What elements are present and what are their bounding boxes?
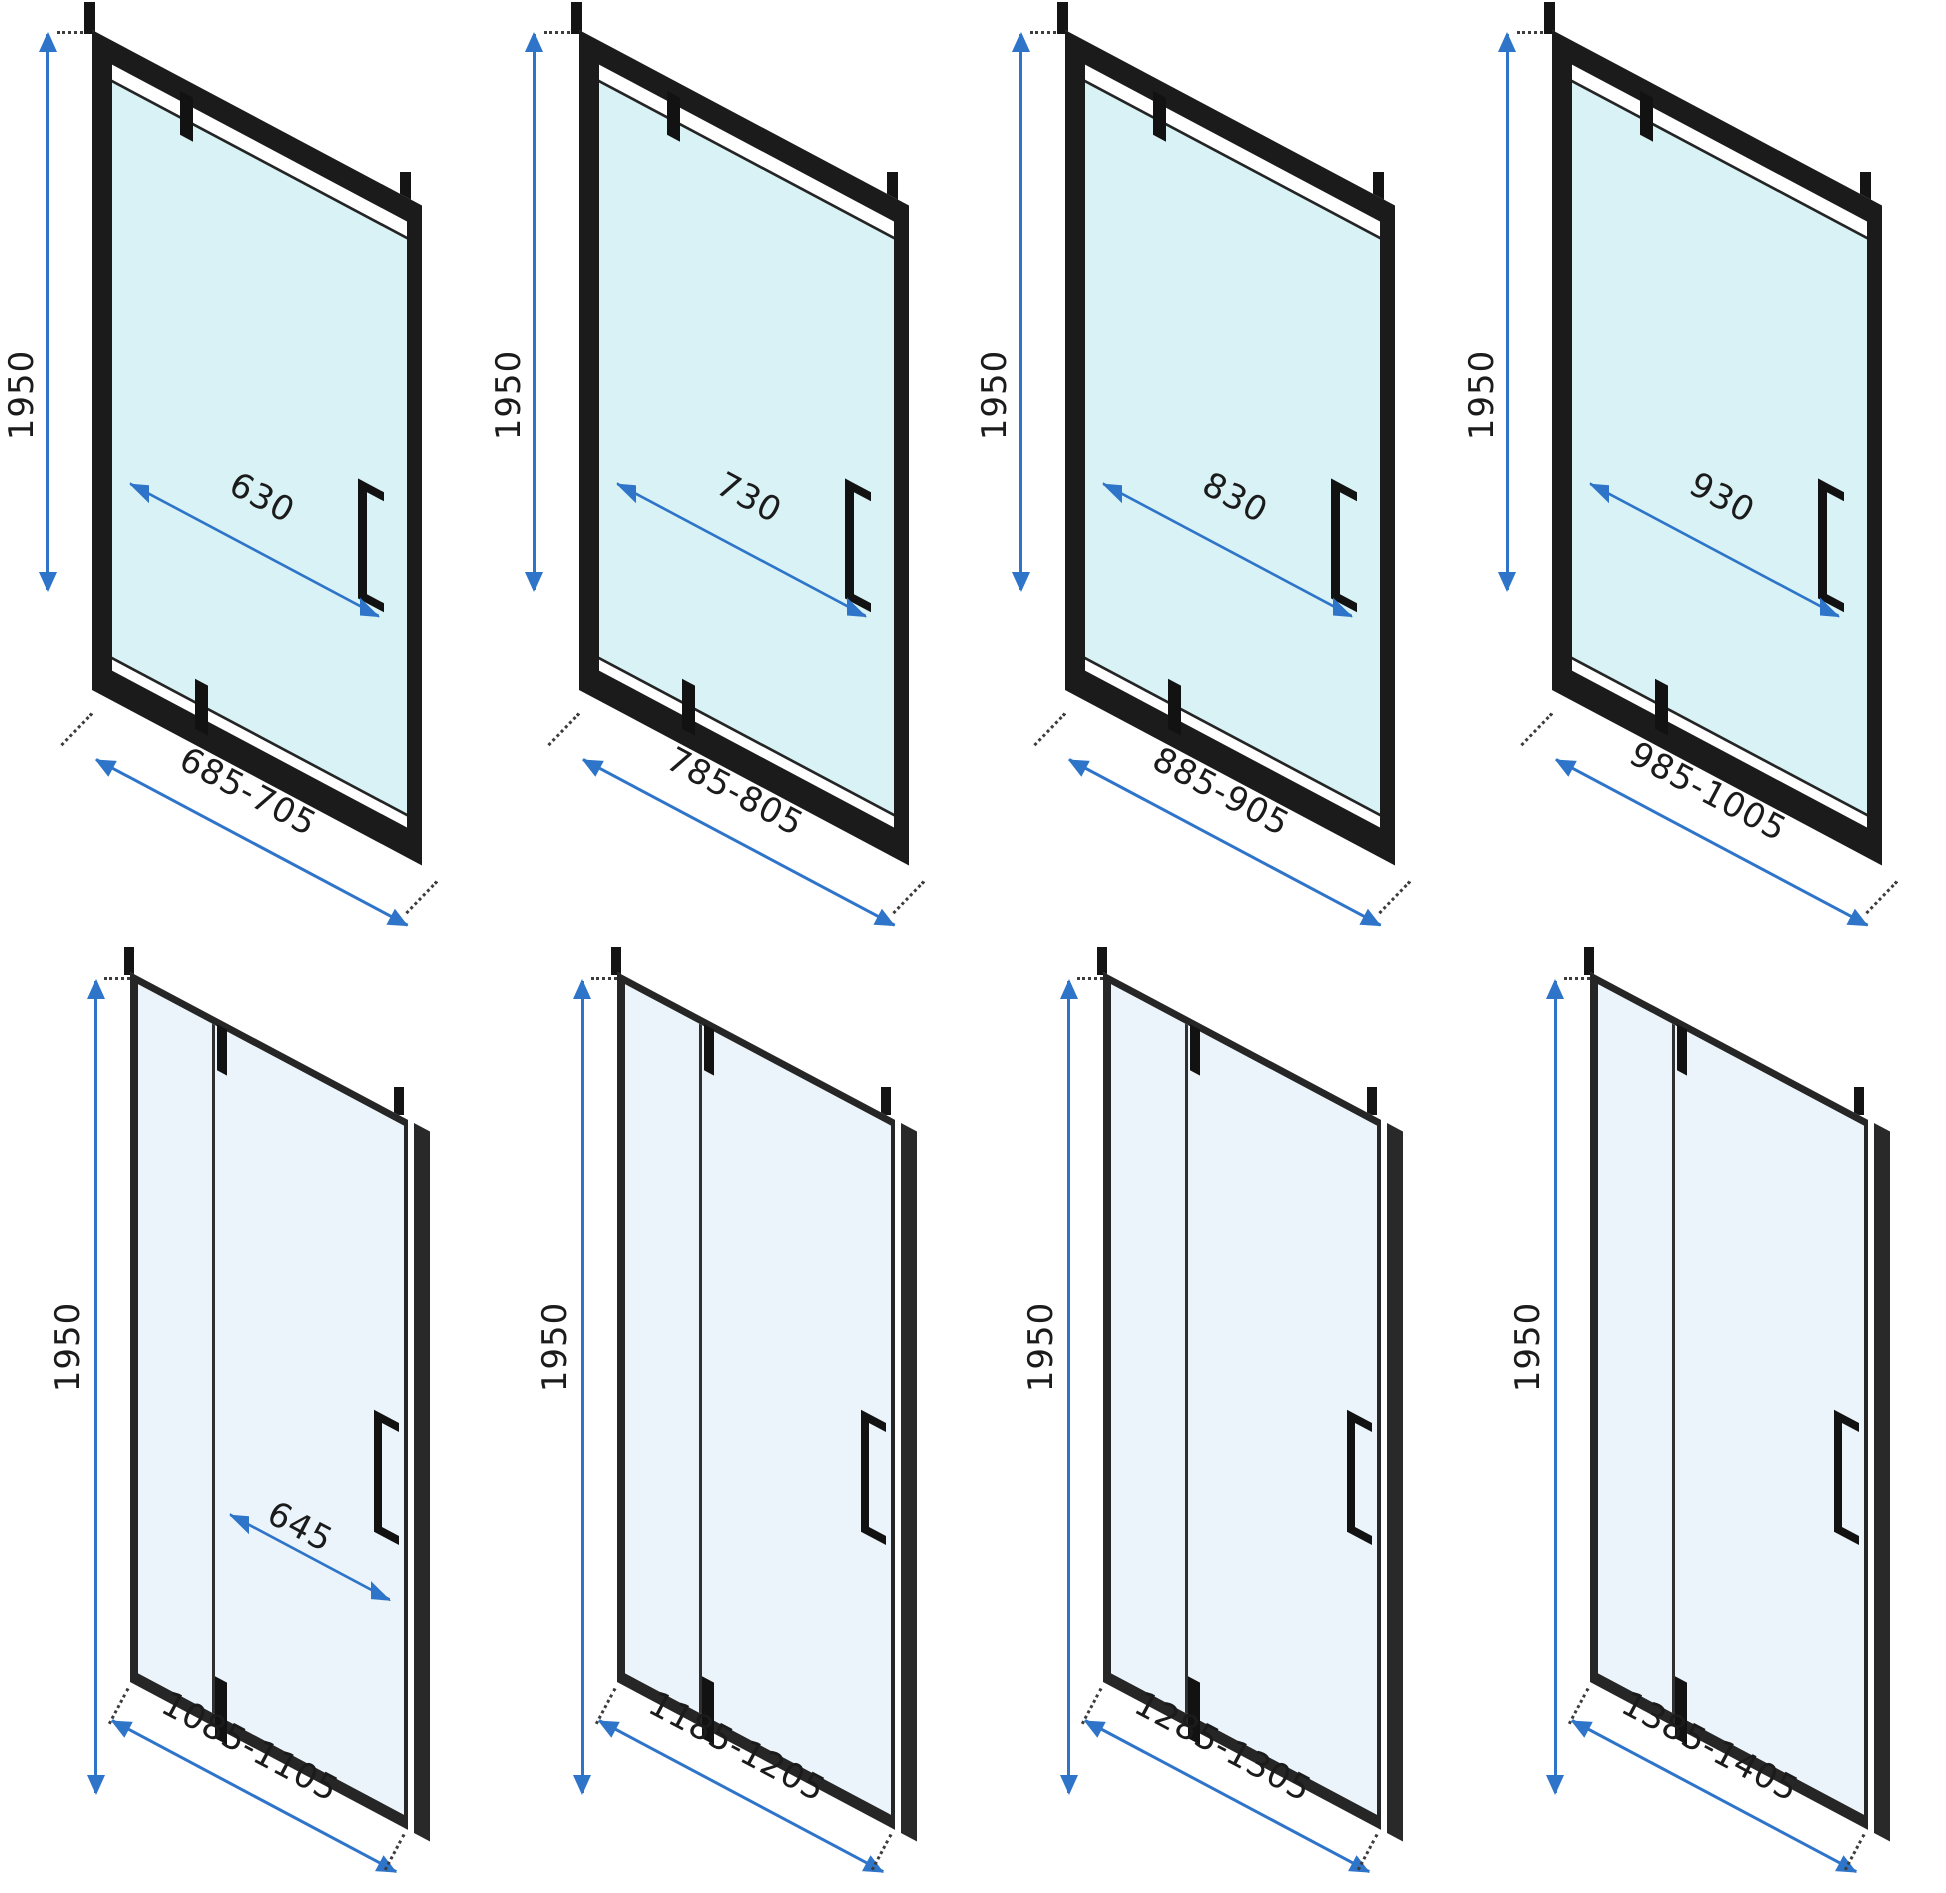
door-diagram-cell: 1950 630 685-705 [0,0,487,947]
hinge-clip-top [1677,1024,1687,1075]
shower-door-drawing [1552,30,1882,865]
hinge-clip-top [666,91,679,142]
wall-profile-tab-right [881,1087,891,1115]
hinge-clip-bottom [1168,679,1181,736]
height-dimension-arrow [533,34,536,590]
height-dimension-label: 1950 [2,350,42,441]
wall-profile-tab-right [394,1087,404,1115]
hinge-clip-bottom [195,679,208,736]
dotted-leader-bottom-right [405,880,438,914]
wall-profile-tab-left [84,2,95,34]
sliding-panel-divider [212,1023,215,1714]
height-dimension-arrow [1506,34,1509,590]
wall-profile-tab-right [1367,1087,1377,1115]
door-diagram-cell: 1950 830 885-905 [973,0,1460,947]
wall-profile-tab-left [1544,2,1555,34]
wall-profile-tab-right [1854,1087,1864,1115]
height-dimension-arrow [46,34,49,590]
hinge-clip-top [1190,1024,1200,1075]
door-diagram-cell: 1950 930 985-1005 [1460,0,1946,947]
dotted-leader-top [1564,977,1590,980]
door-diagram-cell: 1950 1185-1205 [487,947,974,1893]
door-handle [374,1409,382,1535]
height-dimension-label: 1950 [535,1301,575,1392]
wall-profile-tab-left [124,947,134,975]
shower-door-drawing [92,30,422,865]
height-dimension-label: 1950 [489,350,529,441]
door-handle [861,1409,869,1535]
height-dimension-label: 1950 [1021,1301,1061,1392]
shower-door-drawing [1065,30,1395,865]
hinge-clip-top [217,1024,227,1075]
dotted-leader-top [1077,977,1103,980]
wall-profile-bar [414,1123,430,1842]
height-dimension-arrow [94,981,97,1793]
glass-panel [599,80,894,817]
door-handle [1818,478,1827,603]
hinge-clip-bottom [681,679,694,736]
door-diagram-cell: 1950 1285-1305 [973,947,1460,1893]
dotted-leader-top [591,977,617,980]
diagram-sheet: 1950 630 685-705 1950 [0,0,1946,1893]
dotted-leader-bottom-right [1378,880,1411,914]
dotted-leader-bottom-left [1033,712,1066,746]
wall-profile-bar [901,1123,917,1842]
dotted-leader-bottom-left [547,712,580,746]
door-handle [1331,478,1340,603]
wall-profile-tab-left [1097,947,1107,975]
dotted-leader-bottom-left [60,712,93,746]
glass-panel [1572,80,1867,817]
dotted-leader-bottom-right [1865,880,1898,914]
wall-profile-bar [1387,1123,1403,1842]
wall-profile-tab-left [1057,2,1068,34]
height-dimension-label: 1950 [975,350,1015,441]
height-dimension-label: 1950 [1508,1301,1548,1392]
glass-panel [112,80,407,817]
height-dimension-arrow [581,981,584,1793]
hinge-clip-top [1153,91,1166,142]
door-diagram-cell: 1950 645 1085-1105 [0,947,487,1893]
hinge-clip-top [180,91,193,142]
door-handle [845,478,854,603]
sliding-panel-divider [1185,1023,1188,1714]
height-dimension-arrow [1019,34,1022,590]
sliding-panel-divider [1672,1023,1675,1714]
height-dimension-label: 1950 [48,1301,88,1392]
dotted-leader-top [104,977,130,980]
door-handle [1834,1409,1842,1535]
dotted-leader-bottom-left [1520,712,1553,746]
door-diagram-cell: 1950 1385-1405 [1460,947,1946,1893]
door-handle [1347,1409,1355,1535]
hinge-clip-top [1639,91,1652,142]
door-handle [358,478,367,603]
wall-profile-tab-left [571,2,582,34]
hinge-clip-bottom [1654,679,1667,736]
hinge-clip-top [704,1024,714,1075]
wall-profile-tab-left [611,947,621,975]
door-diagram-cell: 1950 730 785-805 [487,0,974,947]
height-dimension-label: 1950 [1462,350,1502,441]
height-dimension-arrow [1067,981,1070,1793]
dotted-leader-bottom-right [892,880,925,914]
shower-door-drawing [579,30,909,865]
wall-profile-tab-left [1584,947,1594,975]
height-dimension-arrow [1554,981,1557,1793]
glass-panel [1085,80,1380,817]
sliding-panel-divider [699,1023,702,1714]
wall-profile-bar [1874,1123,1890,1842]
